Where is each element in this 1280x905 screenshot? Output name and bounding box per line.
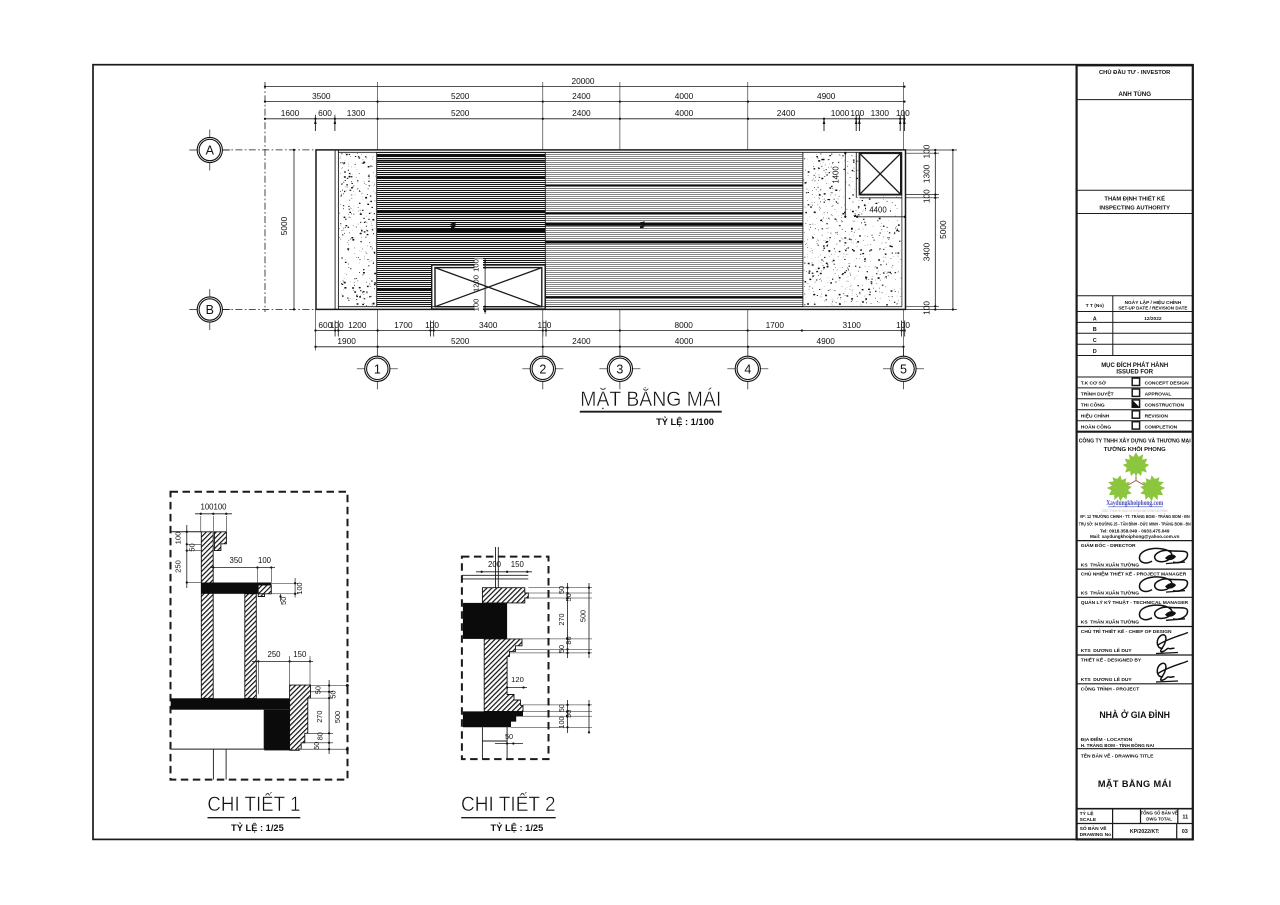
- svg-text:TRỤ SỞ: 34 ĐƯỜNG 25 - TÂN BÌNH: TRỤ SỞ: 34 ĐƯỜNG 25 - TÂN BÌNH - ĐỨC MIN…: [1079, 519, 1192, 526]
- svg-text:5200: 5200: [451, 91, 470, 101]
- svg-text:B: B: [1093, 327, 1097, 333]
- svg-text:QUẢN LÝ KỸ THUẬT - TECHNICAL M: QUẢN LÝ KỸ THUẬT - TECHNICAL MANAGER: [1081, 599, 1189, 606]
- svg-text:Mail: xaydungkhoiphong@yahoo.c: Mail: xaydungkhoiphong@yahoo.com.vn: [1090, 534, 1180, 539]
- svg-text:APPROVAL: APPROVAL: [1145, 392, 1172, 398]
- svg-text:3400: 3400: [921, 242, 931, 261]
- svg-text:500: 500: [579, 610, 588, 622]
- svg-text:50: 50: [564, 593, 573, 601]
- svg-text:CÔNG TY TNHH XÂY DỰNG VÀ THƯƠN: CÔNG TY TNHH XÂY DỰNG VÀ THƯƠNG MẠI TƯỜN…: [1102, 508, 1168, 513]
- svg-text:100: 100: [921, 301, 931, 315]
- svg-text:200: 200: [488, 560, 502, 569]
- svg-text:350: 350: [229, 556, 243, 565]
- svg-text:120: 120: [511, 675, 524, 684]
- svg-text:DRAWING No: DRAWING No: [1080, 832, 1112, 838]
- svg-text:TỶ LỆ : 1/25: TỶ LỆ : 1/25: [491, 822, 544, 833]
- svg-text:100: 100: [921, 189, 931, 203]
- svg-text:50: 50: [188, 543, 197, 551]
- svg-text:250: 250: [173, 560, 182, 573]
- svg-text:1300: 1300: [871, 108, 890, 118]
- svg-text:100: 100: [921, 144, 931, 158]
- svg-text:4400: 4400: [869, 205, 887, 214]
- svg-text:4900: 4900: [816, 336, 835, 346]
- svg-text:5: 5: [900, 362, 907, 376]
- svg-text:5000: 5000: [279, 216, 289, 235]
- svg-text:1: 1: [374, 362, 381, 376]
- svg-text:Xaydungkhoiphong.com: Xaydungkhoiphong.com: [1106, 499, 1163, 507]
- svg-text:1900: 1900: [337, 336, 356, 346]
- svg-text:4: 4: [744, 362, 751, 376]
- svg-text:1200: 1200: [348, 320, 367, 330]
- svg-text:100: 100: [200, 502, 214, 511]
- svg-text:12/2022: 12/2022: [1144, 316, 1162, 322]
- svg-text:2: 2: [539, 362, 546, 376]
- svg-text:100: 100: [896, 108, 910, 118]
- svg-text:THẨM ĐỊNH THIẾT KẾ: THẨM ĐỊNH THIẾT KẾ: [1104, 196, 1165, 203]
- svg-text:CÔNG TY TNHH XÂY DỰNG VÀ THƯƠN: CÔNG TY TNHH XÂY DỰNG VÀ THƯƠNG MẠI: [1079, 437, 1191, 445]
- svg-text:8000: 8000: [674, 320, 693, 330]
- svg-text:3100: 3100: [842, 320, 861, 330]
- svg-text:150: 150: [293, 650, 307, 659]
- svg-text:100: 100: [472, 299, 481, 312]
- svg-text:100: 100: [537, 320, 551, 330]
- svg-text:3: 3: [616, 362, 623, 376]
- svg-text:B: B: [206, 303, 214, 317]
- svg-text:MẶT BẰNG MÁI: MẶT BẰNG MÁI: [580, 386, 721, 411]
- svg-text:C: C: [1093, 338, 1097, 344]
- svg-text:5000: 5000: [938, 220, 948, 239]
- svg-text:SCALE: SCALE: [1080, 817, 1097, 823]
- svg-text:2400: 2400: [572, 108, 591, 118]
- svg-text:5200: 5200: [451, 108, 470, 118]
- svg-text:100: 100: [472, 259, 481, 272]
- svg-text:100: 100: [330, 320, 344, 330]
- svg-text:20000: 20000: [571, 76, 594, 86]
- svg-text:150: 150: [511, 560, 525, 569]
- svg-text:100: 100: [173, 532, 182, 545]
- svg-text:2400: 2400: [777, 108, 796, 118]
- svg-text:1600: 1600: [281, 108, 300, 118]
- svg-text:11: 11: [1182, 815, 1188, 821]
- svg-text:270: 270: [557, 613, 566, 625]
- svg-text:2400: 2400: [572, 336, 591, 346]
- svg-text:Tel: 0918.358.049 - 0933.475.0: Tel: 0918.358.049 - 0933.475.049: [1100, 528, 1170, 533]
- svg-text:50: 50: [314, 686, 323, 694]
- svg-text:T.K CƠ SỞ: T.K CƠ SỞ: [1081, 380, 1107, 387]
- svg-text:GIÁM ĐỐC - DIRECTOR: GIÁM ĐỐC - DIRECTOR: [1081, 542, 1136, 549]
- svg-text:1400: 1400: [831, 166, 840, 184]
- svg-text:D: D: [1093, 349, 1097, 355]
- svg-text:100: 100: [295, 582, 304, 594]
- svg-text:100: 100: [557, 716, 566, 728]
- svg-text:5200: 5200: [451, 336, 470, 346]
- svg-text:VP: 12 TRƯỜNG CHINH - TT. TRẢN: VP: 12 TRƯỜNG CHINH - TT. TRẢNG BOM - TR…: [1080, 512, 1191, 519]
- svg-text:1300: 1300: [347, 108, 366, 118]
- svg-text:A: A: [1093, 316, 1097, 322]
- svg-text:80: 80: [316, 732, 325, 740]
- svg-text:COMPLETION: COMPLETION: [1145, 424, 1178, 430]
- svg-text:THIẾT KẾ - DESIGNED BY: THIẾT KẾ - DESIGNED BY: [1081, 657, 1142, 664]
- svg-text:INSPECTING AUTHORITY: INSPECTING AUTHORITY: [1099, 205, 1170, 211]
- svg-text:MỤC ĐÍCH PHÁT HÀNH: MỤC ĐÍCH PHÁT HÀNH: [1101, 361, 1168, 369]
- svg-text:KP/2022/KT:: KP/2022/KT:: [1130, 829, 1160, 835]
- svg-text:CHI TIẾT 2: CHI TIẾT 2: [461, 791, 556, 816]
- svg-text:3500: 3500: [312, 91, 331, 101]
- svg-text:CONCEPT DESIGN: CONCEPT DESIGN: [1145, 381, 1189, 387]
- svg-text:50: 50: [557, 586, 566, 594]
- svg-text:50: 50: [557, 645, 566, 653]
- svg-text:T T (No): T T (No): [1086, 303, 1105, 309]
- svg-text:2400: 2400: [572, 91, 591, 101]
- svg-text:100: 100: [425, 320, 439, 330]
- svg-text:ANH TÙNG: ANH TÙNG: [1118, 91, 1151, 98]
- svg-text:4000: 4000: [675, 108, 694, 118]
- svg-text:100: 100: [213, 502, 227, 511]
- svg-text:H. TRẢNG BOM - TỈNH ĐỒNG NAI: H. TRẢNG BOM - TỈNH ĐỒNG NAI: [1081, 742, 1154, 748]
- svg-text:50: 50: [279, 597, 288, 605]
- svg-text:1000: 1000: [831, 108, 850, 118]
- svg-text:NHÀ Ở GIA ĐÌNH: NHÀ Ở GIA ĐÌNH: [1099, 709, 1170, 720]
- svg-text:50: 50: [329, 690, 338, 698]
- svg-text:1700: 1700: [394, 320, 413, 330]
- svg-text:250: 250: [267, 650, 281, 659]
- svg-text:SỐ BẢN VẼ: SỐ BẢN VẼ: [1080, 825, 1108, 832]
- svg-text:270: 270: [315, 711, 324, 723]
- svg-text:03: 03: [1182, 829, 1188, 835]
- svg-text:4900: 4900: [817, 91, 836, 101]
- svg-text:TỔNG SỐ BẢN VẼ: TỔNG SỐ BẢN VẼ: [1140, 811, 1177, 816]
- svg-text:1300: 1300: [921, 164, 931, 183]
- svg-text:500: 500: [333, 711, 342, 723]
- svg-text:MẶT BẰNG MÁI: MẶT BẰNG MÁI: [1098, 778, 1172, 789]
- svg-text:50: 50: [505, 732, 513, 741]
- svg-text:1200: 1200: [472, 275, 481, 292]
- svg-text:1700: 1700: [766, 320, 785, 330]
- svg-text:CHỦ ĐẦU TƯ - INVESTOR: CHỦ ĐẦU TƯ - INVESTOR: [1099, 69, 1171, 76]
- svg-text:TỶ LỆ : 1/25: TỶ LỆ : 1/25: [231, 822, 284, 833]
- svg-text:600: 600: [318, 108, 332, 118]
- svg-text:80: 80: [564, 636, 573, 644]
- svg-text:A: A: [206, 144, 215, 158]
- svg-text:TỶ LỆ : 1/100: TỶ LỆ : 1/100: [656, 416, 714, 427]
- svg-text:3400: 3400: [479, 320, 498, 330]
- svg-text:TƯỜNG KHÔI PHONG: TƯỜNG KHÔI PHONG: [1104, 445, 1166, 453]
- svg-text:4000: 4000: [675, 91, 694, 101]
- svg-text:DWG TOTAL: DWG TOTAL: [1146, 817, 1172, 822]
- svg-text:REVISION: REVISION: [1145, 413, 1169, 419]
- svg-text:50: 50: [312, 742, 321, 750]
- svg-text:100: 100: [896, 320, 910, 330]
- svg-text:100: 100: [850, 108, 864, 118]
- svg-text:SET-UP DATE / REVISION DATE: SET-UP DATE / REVISION DATE: [1118, 306, 1187, 311]
- svg-text:100: 100: [258, 556, 272, 565]
- svg-text:CHI TIẾT 1: CHI TIẾT 1: [207, 791, 300, 816]
- svg-text:4000: 4000: [675, 336, 694, 346]
- svg-text:CONSTRUCTION: CONSTRUCTION: [1145, 403, 1185, 409]
- svg-text:ISSUED FOR: ISSUED FOR: [1116, 369, 1153, 375]
